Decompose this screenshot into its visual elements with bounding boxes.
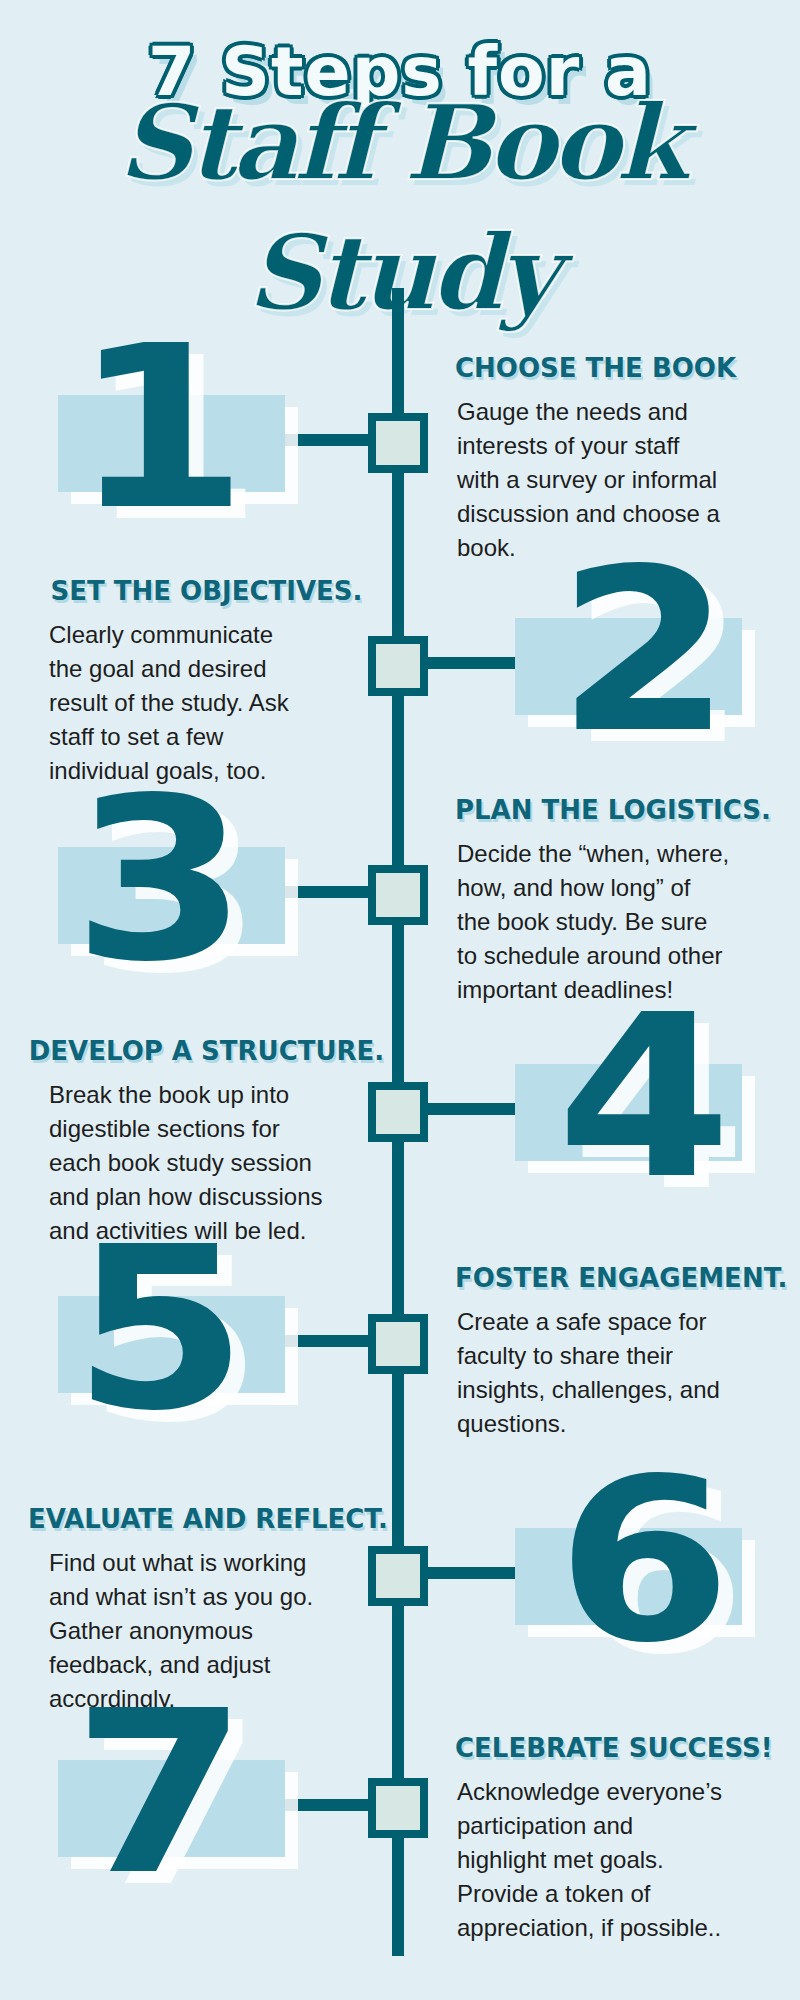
- timeline-node-step-7: [368, 1778, 428, 1838]
- connector-line-step-7: [278, 1799, 374, 1811]
- step-number-6: 6: [556, 1449, 731, 1674]
- step-heading-6: EVALUATE AND REFLECT.: [28, 1504, 385, 1534]
- connector-line-step-2: [424, 657, 522, 669]
- step-number-box-4: 4: [529, 992, 759, 1202]
- infographic-canvas: 7 Steps for a Staff Book Study 1CHOOSE T…: [0, 0, 800, 2000]
- timeline-node-step-3: [368, 865, 428, 925]
- step-number-3: 3: [72, 768, 247, 993]
- step-number-box-2: 2: [529, 546, 759, 756]
- connector-line-step-6: [424, 1567, 522, 1579]
- step-body-5: Create a safe space forfaculty to share …: [457, 1305, 797, 1441]
- step-number-2: 2: [556, 539, 731, 764]
- connector-line-step-1: [278, 434, 374, 446]
- step-number-box-5: 5: [45, 1224, 275, 1434]
- step-number-1: 1: [72, 316, 247, 541]
- step-heading-7: CELEBRATE SUCCESS!: [455, 1733, 773, 1763]
- timeline-node-step-5: [368, 1314, 428, 1374]
- step-number-box-7: 7: [45, 1688, 275, 1898]
- step-heading-5: FOSTER ENGAGEMENT.: [455, 1263, 787, 1293]
- step-number-7: 7: [72, 1681, 247, 1906]
- step-heading-4: DEVELOP A STRUCTURE.: [28, 1036, 385, 1066]
- step-number-box-3: 3: [45, 775, 275, 985]
- step-number-box-1: 1: [45, 323, 275, 533]
- connector-line-step-5: [278, 1335, 374, 1347]
- timeline-node-step-1: [368, 413, 428, 473]
- step-heading-3: PLAN THE LOGISTICS.: [455, 795, 771, 825]
- step-heading-2: SET THE OBJECTIVES.: [28, 576, 385, 606]
- step-number-box-6: 6: [529, 1456, 759, 1666]
- connector-line-step-4: [424, 1103, 522, 1115]
- step-number-4: 4: [556, 985, 731, 1210]
- step-number-5: 5: [72, 1217, 247, 1442]
- step-heading-1: CHOOSE THE BOOK: [455, 353, 736, 383]
- connector-line-step-3: [278, 886, 374, 898]
- step-body-7: Acknowledge everyone’sparticipation andh…: [457, 1775, 797, 1945]
